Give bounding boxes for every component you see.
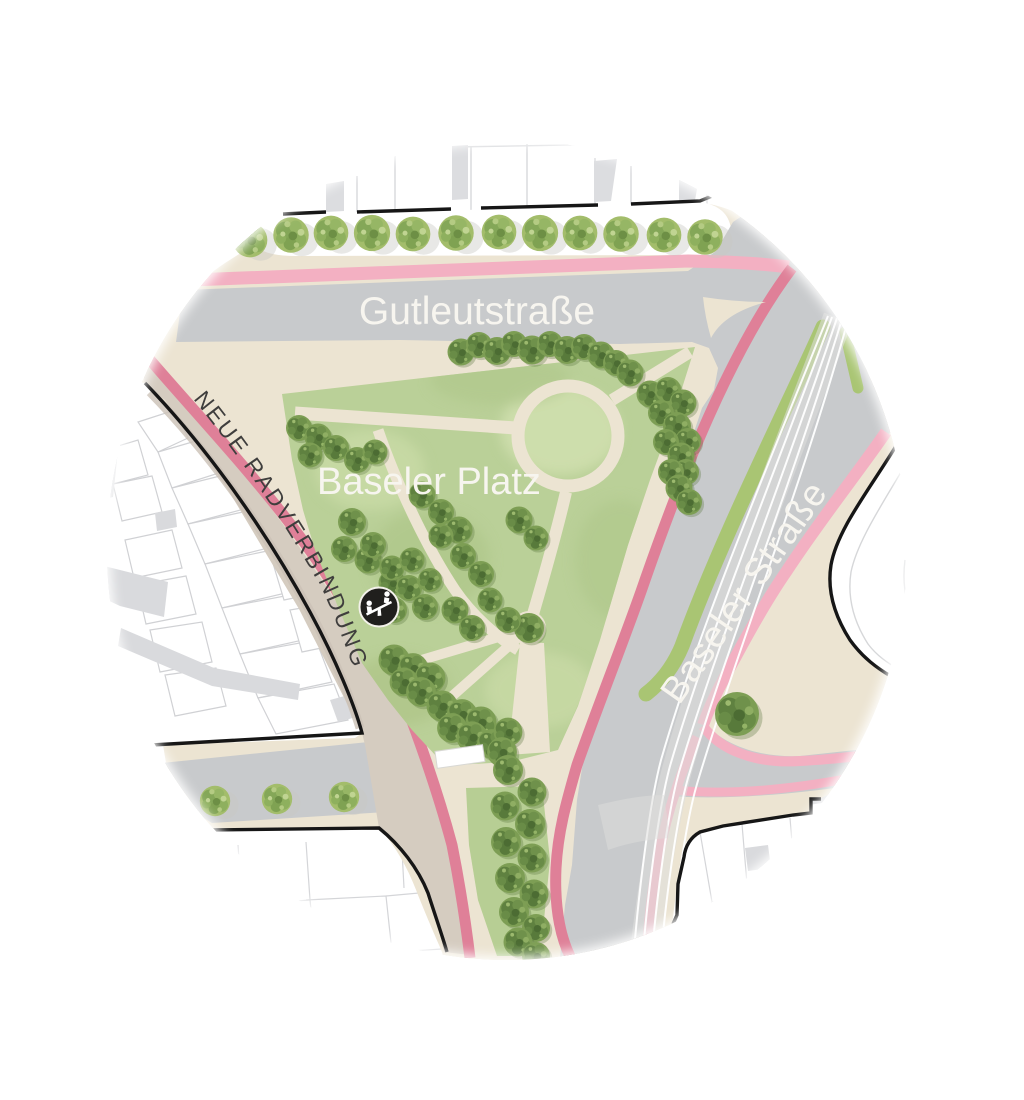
svg-text:Baseler Platz: Baseler Platz (317, 461, 541, 503)
svg-text:Gutleutstraße: Gutleutstraße (359, 290, 595, 333)
